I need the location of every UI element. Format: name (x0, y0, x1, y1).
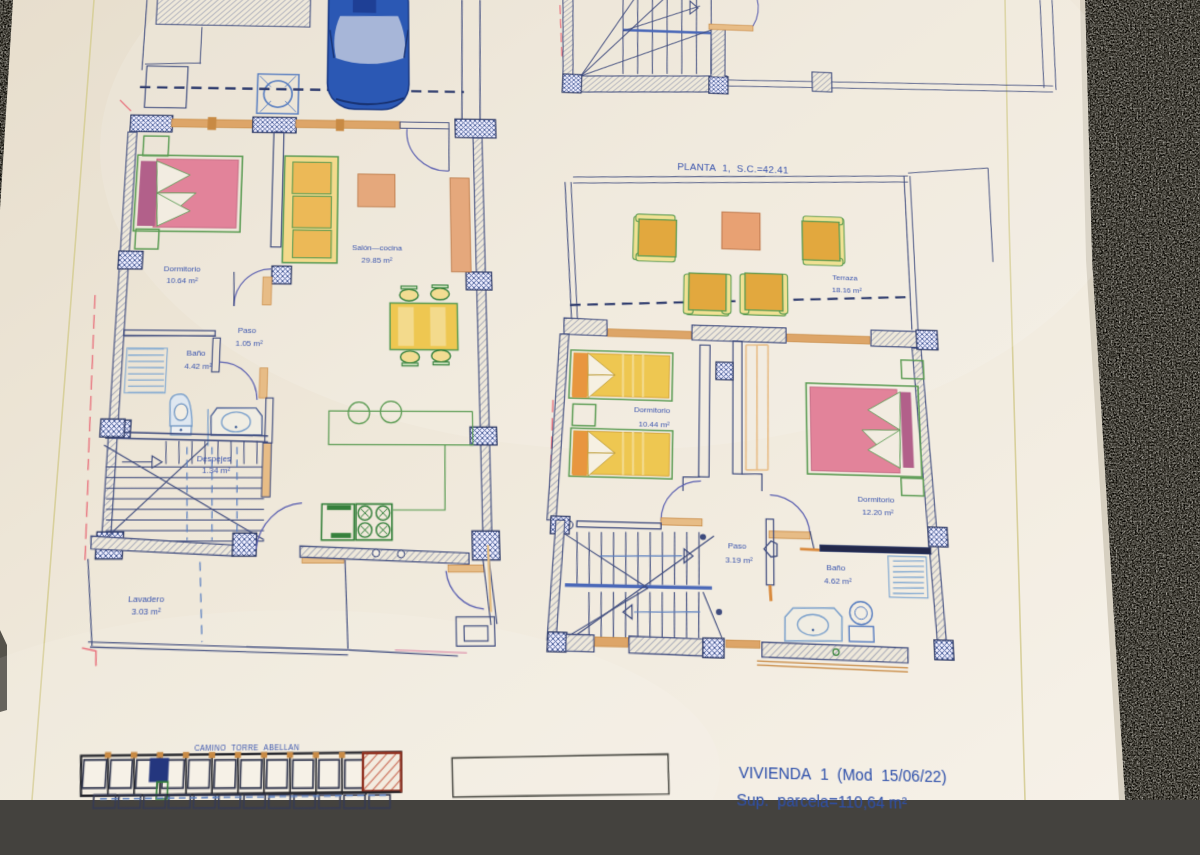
svg-text:Paso: Paso (728, 543, 747, 552)
svg-text:10.44 m²: 10.44 m² (638, 421, 670, 430)
svg-text:Baño: Baño (826, 564, 845, 573)
svg-text:12.20 m²: 12.20 m² (862, 509, 894, 518)
svg-text:4.62 m²: 4.62 m² (824, 578, 853, 587)
svg-text:Dormitorio: Dormitorio (858, 496, 895, 505)
svg-text:PLANTA 1, S.C.=42.41: PLANTA 1, S.C.=42.41 (677, 162, 788, 176)
svg-text:VIVIENDA 1 (Mod 15/06/22): VIVIENDA 1 (Mod 15/06/22) (739, 764, 947, 787)
svg-text:Sup. parcela=110,64 m²: Sup. parcela=110,64 m² (736, 791, 907, 813)
svg-text:3.19 m²: 3.19 m² (725, 557, 753, 566)
svg-text:18.16 m²: 18.16 m² (832, 287, 863, 295)
svg-text:Dormitorio: Dormitorio (634, 407, 671, 416)
svg-text:Terraza: Terraza (832, 275, 857, 283)
